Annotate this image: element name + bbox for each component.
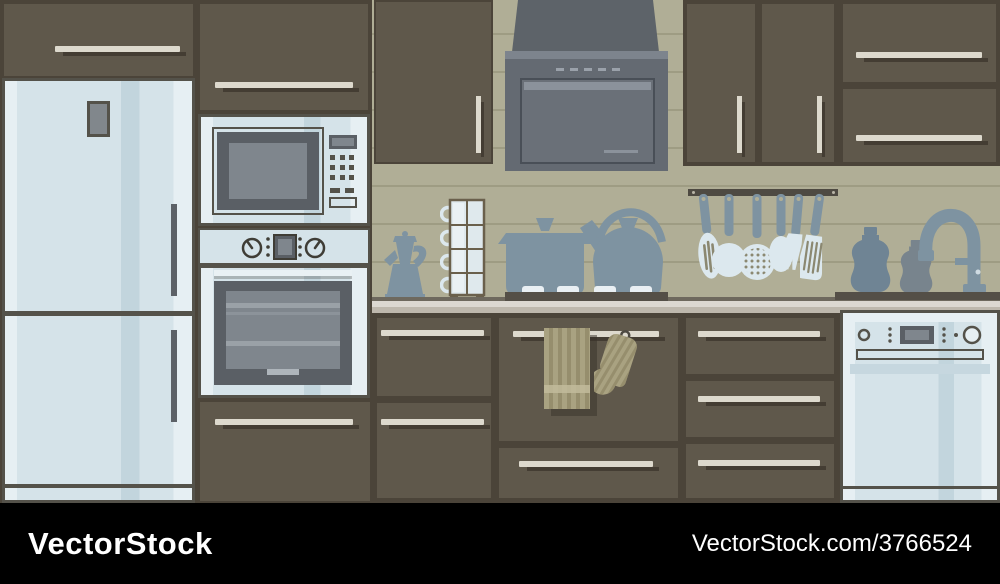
cabinet-handle <box>215 419 353 425</box>
moka-top <box>396 242 414 264</box>
kettle-lid <box>618 218 638 228</box>
drawer-middle <box>497 446 680 500</box>
door-handle-vertical <box>476 96 481 153</box>
utensil-turner <box>800 192 844 296</box>
soap-bottle-large <box>851 227 891 292</box>
kettle-body <box>593 227 663 294</box>
cabinet-below-oven <box>198 400 372 503</box>
drawer-handle <box>698 331 820 337</box>
watermark-brand: VectorStock <box>28 526 213 562</box>
hood-button <box>570 68 578 71</box>
cabinet-handle <box>215 82 353 88</box>
microwave-buttons <box>330 155 354 193</box>
oven-rack-line <box>226 303 340 308</box>
drawer-left-1 <box>375 316 493 398</box>
drawer-handle <box>698 396 820 402</box>
cabinet-handle <box>55 46 180 52</box>
hood-button <box>598 68 606 71</box>
pot-knob <box>536 218 554 231</box>
microwave-control-panel <box>328 132 358 210</box>
moka-handle <box>413 246 426 267</box>
oven-mitt <box>594 328 658 408</box>
range-hood-top-bar <box>505 51 668 59</box>
dishwasher-door-shade <box>850 364 990 374</box>
range-hood <box>505 51 668 171</box>
cabinet-handle <box>856 52 982 58</box>
oven-rack-line <box>226 341 340 346</box>
faucet-lever <box>955 258 969 265</box>
dishwasher-base-line <box>843 486 997 489</box>
upper-door-right-2 <box>760 2 836 164</box>
hood-vent-strip <box>524 82 651 90</box>
faucet <box>910 192 994 294</box>
kettle <box>578 200 670 297</box>
door-handle-vertical <box>737 96 742 153</box>
dishwasher-top-strip <box>843 313 997 322</box>
upper-door-far-right-2 <box>841 87 998 164</box>
towel-band <box>544 385 590 393</box>
drawer-right-2 <box>684 379 836 439</box>
drawer-handle <box>381 419 484 425</box>
fridge-base-line <box>2 484 195 488</box>
drawer-left-2 <box>375 401 493 500</box>
oven-lamp <box>267 369 299 375</box>
cooktop-strip <box>505 292 668 301</box>
sink-counter-strip <box>835 292 1000 300</box>
cabinet-handle <box>856 135 982 141</box>
fridge-handle-top <box>171 204 177 296</box>
upper-door-right-1 <box>685 2 757 164</box>
drawer-right-1 <box>684 316 836 376</box>
oven-window <box>214 281 352 385</box>
dishwasher-control-panel <box>848 324 992 346</box>
hood-vent-panel <box>520 78 655 164</box>
kitchen-illustration: VectorStock VectorStock.com/3766524 <box>0 0 1000 584</box>
cup-stand <box>440 198 486 300</box>
fridge-handle-bottom <box>171 330 177 422</box>
door-handle-vertical <box>817 96 822 153</box>
drawer-handle <box>381 330 484 336</box>
drawer-right-3 <box>684 442 836 500</box>
dishwasher-knob <box>964 327 980 343</box>
moka-spout <box>384 250 398 266</box>
cabinet-above-microwave <box>198 2 370 112</box>
oven-rack-line <box>226 312 340 315</box>
drawer-handle <box>519 461 653 467</box>
hood-button <box>612 68 620 71</box>
dish-towel <box>544 328 590 409</box>
oven-handle <box>214 270 352 276</box>
faucet-spout-tip <box>918 250 934 261</box>
upper-door-far-right-1 <box>841 2 998 84</box>
fridge-display <box>87 101 110 137</box>
watermark-bar: VectorStock VectorStock.com/3766524 <box>0 503 1000 584</box>
hood-button <box>584 68 592 71</box>
oven-controls <box>198 228 370 265</box>
dishwasher-handle <box>856 349 984 360</box>
refrigerator <box>2 78 195 503</box>
hood-button <box>556 68 564 71</box>
range-hood-duct <box>512 0 659 52</box>
microwave-screen <box>229 143 307 199</box>
watermark-site-ref: VectorStock.com/3766524 <box>692 530 972 558</box>
moka-pot <box>380 230 436 298</box>
moka-base <box>387 264 423 294</box>
drawer-handle <box>698 460 820 466</box>
cabinet-above-fridge <box>2 2 195 78</box>
fridge-door-divider <box>2 311 195 316</box>
hood-vent-dash <box>604 150 638 153</box>
